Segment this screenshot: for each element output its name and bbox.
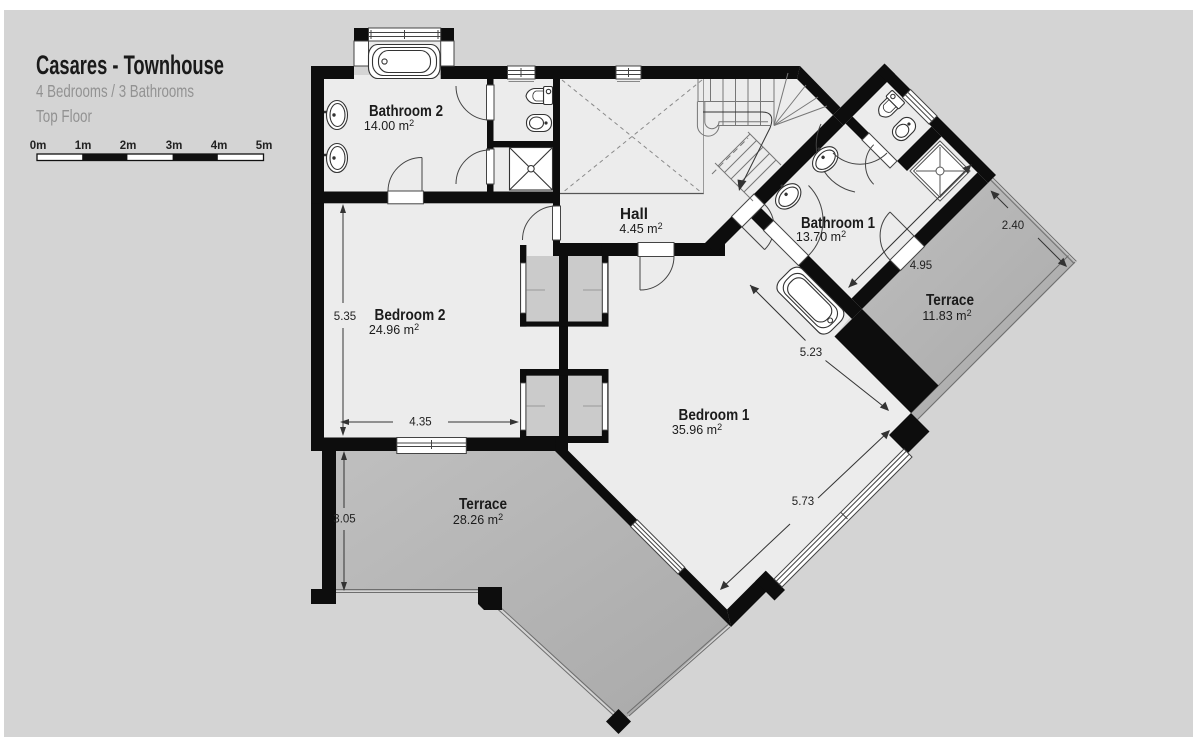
svg-text:Bathroom 2: Bathroom 2 <box>369 103 443 120</box>
svg-text:13.70 m2: 13.70 m2 <box>796 229 846 244</box>
svg-text:3.05: 3.05 <box>333 514 355 526</box>
svg-text:Terrace: Terrace <box>459 496 507 513</box>
svg-text:5m: 5m <box>256 140 273 152</box>
svg-text:24.96 m2: 24.96 m2 <box>369 322 419 337</box>
svg-text:4.95: 4.95 <box>910 260 932 272</box>
svg-text:4 Bedrooms / 3 Bathrooms: 4 Bedrooms / 3 Bathrooms <box>36 81 194 101</box>
svg-text:11.83 m2: 11.83 m2 <box>922 308 971 323</box>
svg-text:Bedroom 1: Bedroom 1 <box>679 407 750 424</box>
svg-text:1m: 1m <box>75 140 92 152</box>
svg-text:3m: 3m <box>166 140 183 152</box>
svg-text:28.26 m2: 28.26 m2 <box>453 512 503 527</box>
svg-text:5.23: 5.23 <box>800 347 822 359</box>
svg-text:Top Floor: Top Floor <box>36 106 92 126</box>
svg-text:4.35: 4.35 <box>409 417 431 429</box>
svg-text:Hall: Hall <box>620 206 648 223</box>
svg-text:5.73: 5.73 <box>792 496 814 508</box>
svg-text:4m: 4m <box>211 140 228 152</box>
svg-text:5.35: 5.35 <box>334 311 356 323</box>
svg-text:Casares - Townhouse: Casares - Townhouse <box>36 50 224 80</box>
svg-text:4.45 m2: 4.45 m2 <box>619 221 662 236</box>
svg-text:2m: 2m <box>120 140 137 152</box>
svg-text:14.00 m2: 14.00 m2 <box>364 118 414 133</box>
svg-text:Terrace: Terrace <box>926 292 974 309</box>
svg-text:35.96 m2: 35.96 m2 <box>672 422 722 437</box>
svg-text:Bedroom 2: Bedroom 2 <box>375 307 446 324</box>
svg-text:2.40: 2.40 <box>1002 220 1024 232</box>
svg-text:0m: 0m <box>30 140 47 152</box>
